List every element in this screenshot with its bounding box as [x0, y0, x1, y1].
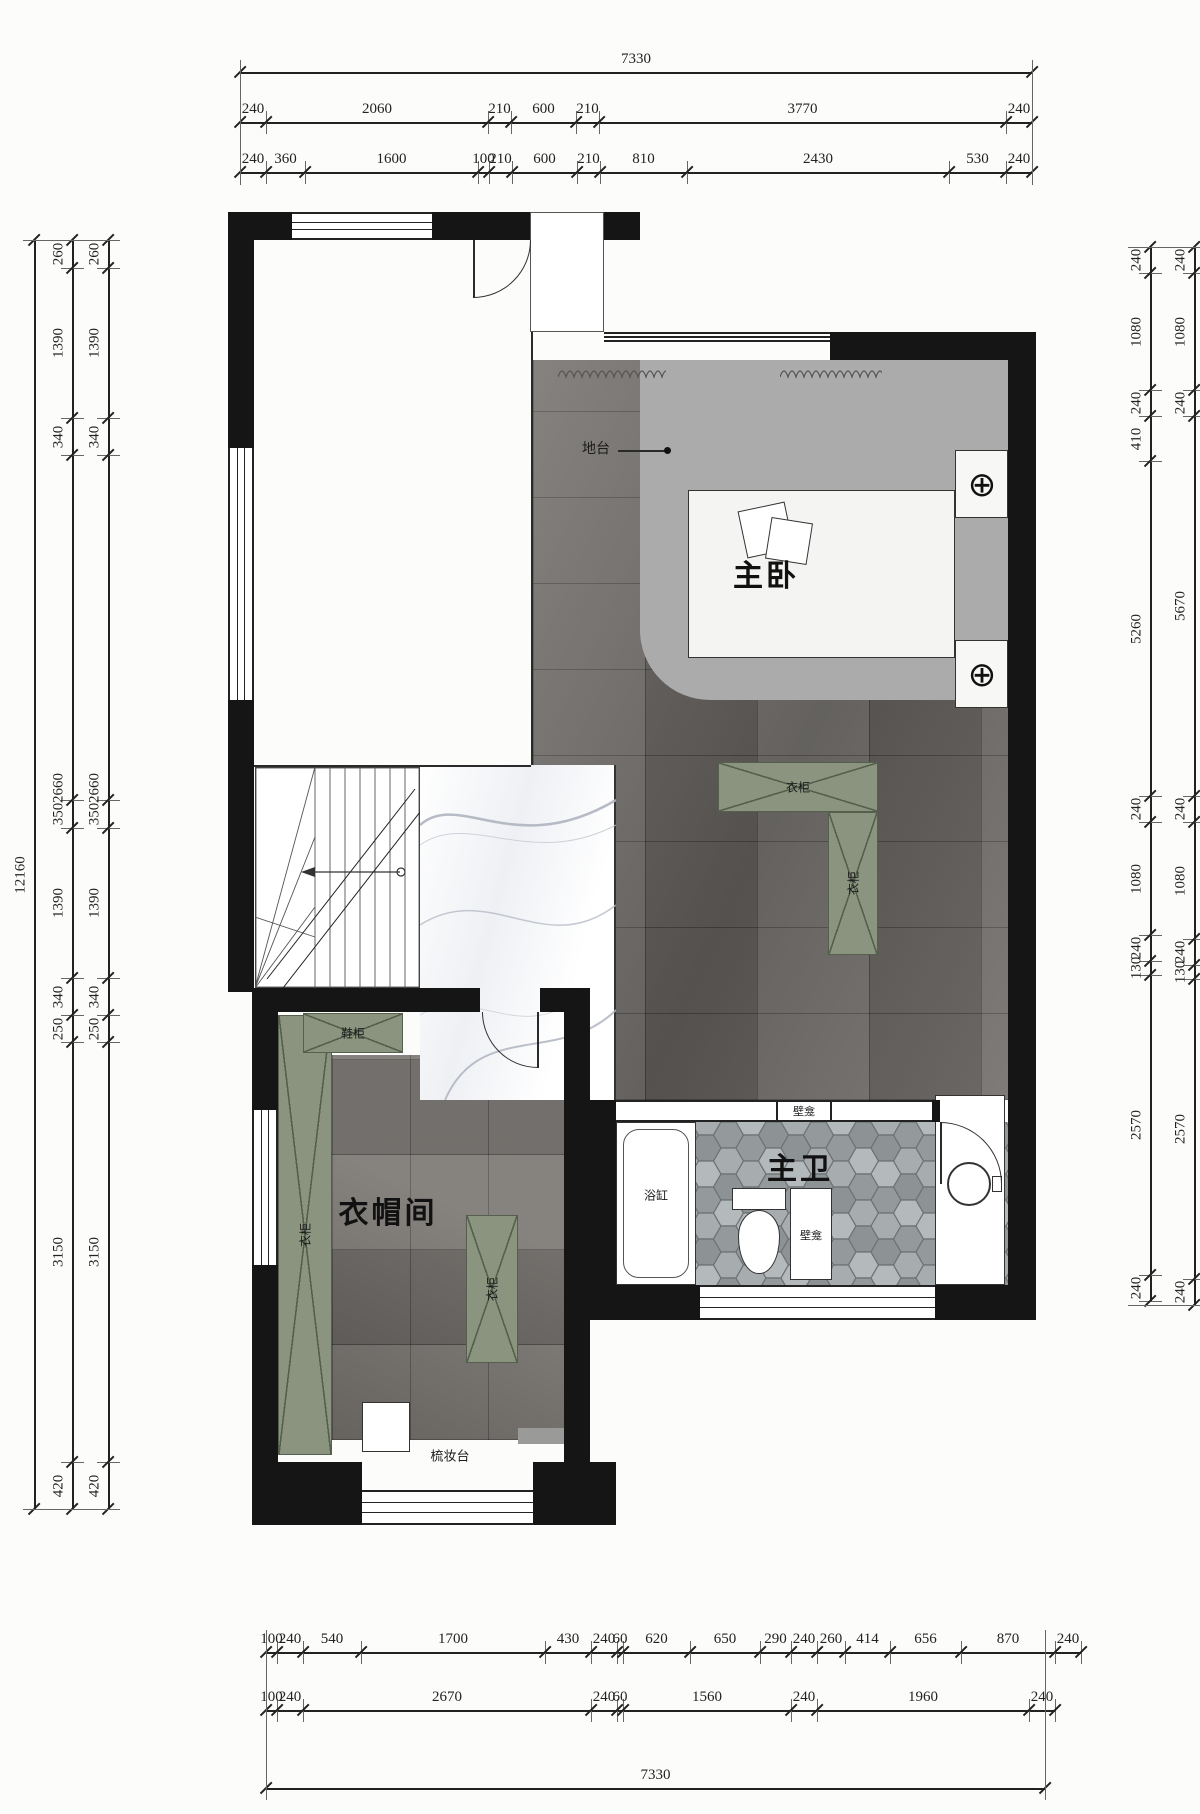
dim-label: 240: [279, 1631, 302, 1648]
dim-label: 2060: [362, 101, 392, 118]
dim-label: 600: [533, 151, 556, 168]
dim-label: 430: [557, 1631, 580, 1648]
dim-extension: [1128, 1305, 1200, 1306]
dim-extension: [26, 240, 118, 241]
dim-label: 350: [51, 803, 68, 826]
dim-label: 60: [613, 1631, 628, 1648]
dim-extension: [266, 1630, 267, 1800]
dim-label: 60: [613, 1689, 628, 1706]
dim-label: 210: [576, 101, 599, 118]
floor-plan-canvas: { "colors": {"wall":"#151515","cabinet_g…: [0, 0, 1200, 1814]
dim-label: 600: [532, 101, 555, 118]
dim-label: 5260: [1129, 614, 1146, 644]
dim-line: [240, 122, 1032, 124]
dim-label: 620: [645, 1631, 668, 1648]
dim-label: 240: [1129, 392, 1146, 415]
dim-label: 656: [914, 1631, 937, 1648]
dim-label: 2660: [51, 773, 68, 803]
dim-label: 7330: [641, 1767, 671, 1784]
dim-extension: [1045, 1630, 1046, 1800]
dim-extension: [26, 1509, 118, 1510]
dim-label: 240: [1008, 101, 1031, 118]
dim-label: 1600: [377, 151, 407, 168]
dim-line: [240, 72, 1032, 74]
dim-label: 2570: [1129, 1110, 1146, 1140]
dim-label: 240: [1008, 151, 1031, 168]
dim-label: 650: [714, 1631, 737, 1648]
dim-label: 240: [242, 151, 265, 168]
dim-label: 2670: [432, 1689, 462, 1706]
dim-label: 250: [87, 1017, 104, 1040]
dim-label: 260: [820, 1631, 843, 1648]
dim-label: 240: [1173, 392, 1190, 415]
dim-label: 240: [279, 1689, 302, 1706]
dim-label: 130: [1129, 957, 1146, 980]
dim-label: 3770: [788, 101, 818, 118]
dim-label: 360: [274, 151, 297, 168]
dim-label: 240: [793, 1689, 816, 1706]
dim-label: 1080: [1129, 317, 1146, 347]
dim-label: 2570: [1173, 1114, 1190, 1144]
dim-label: 810: [632, 151, 655, 168]
dim-line: [266, 1788, 1045, 1790]
dim-label: 1080: [1129, 864, 1146, 894]
dim-label: 7330: [621, 51, 651, 68]
dim-label: 410: [1129, 427, 1146, 450]
dim-label: 414: [856, 1631, 879, 1648]
dim-label: 130: [1173, 961, 1190, 984]
dim-label: 240: [793, 1631, 816, 1648]
dim-label: 340: [87, 425, 104, 448]
dim-label: 340: [51, 425, 68, 448]
dim-label: 240: [1173, 1281, 1190, 1304]
dim-label: 210: [488, 101, 511, 118]
dim-label: 210: [577, 151, 600, 168]
dim-extension: [1032, 60, 1033, 185]
dim-line: [1150, 247, 1152, 1301]
dim-label: 2660: [87, 773, 104, 803]
dim-label: 1390: [51, 328, 68, 358]
dim-label: 1560: [692, 1689, 722, 1706]
dim-label: 340: [87, 985, 104, 1008]
dim-label: 210: [489, 151, 512, 168]
dim-label: 350: [87, 803, 104, 826]
dim-label: 250: [51, 1017, 68, 1040]
dim-line: [240, 172, 1032, 174]
dim-label: 5670: [1173, 591, 1190, 621]
dim-label: 420: [87, 1474, 104, 1497]
dim-label: 290: [764, 1631, 787, 1648]
dim-label: 3150: [51, 1237, 68, 1267]
dim-label: 1960: [908, 1689, 938, 1706]
dim-label: 240: [1129, 1277, 1146, 1300]
dimension-layer: 7330240206021060021037702402403601600100…: [0, 0, 1200, 1814]
dim-label: 240: [1173, 249, 1190, 272]
dim-label: 240: [1031, 1689, 1054, 1706]
dim-label: 1700: [438, 1631, 468, 1648]
dim-label: 2430: [803, 151, 833, 168]
dim-line: [1194, 247, 1196, 1305]
dim-label: 12160: [13, 856, 30, 894]
dim-label: 530: [966, 151, 989, 168]
dim-line: [34, 240, 36, 1509]
dim-label: 240: [1129, 249, 1146, 272]
dim-label: 240: [242, 101, 265, 118]
dim-label: 420: [51, 1474, 68, 1497]
dim-label: 870: [997, 1631, 1020, 1648]
dim-label: 3150: [87, 1237, 104, 1267]
dim-label: 240: [1057, 1631, 1080, 1648]
dim-label: 260: [51, 243, 68, 266]
dim-extension: [240, 60, 241, 185]
dim-label: 1390: [87, 888, 104, 918]
dim-label: 1390: [51, 888, 68, 918]
dim-label: 540: [321, 1631, 344, 1648]
dim-label: 240: [1129, 798, 1146, 821]
dim-label: 1080: [1173, 866, 1190, 896]
dim-line: [72, 240, 74, 1509]
dim-label: 340: [51, 985, 68, 1008]
dim-label: 1390: [87, 328, 104, 358]
dim-label: 260: [87, 243, 104, 266]
dim-line: [266, 1710, 1055, 1712]
dim-label: 240: [1173, 798, 1190, 821]
dim-extension: [1128, 247, 1200, 248]
dim-label: 1080: [1173, 317, 1190, 347]
dim-line: [108, 240, 110, 1509]
